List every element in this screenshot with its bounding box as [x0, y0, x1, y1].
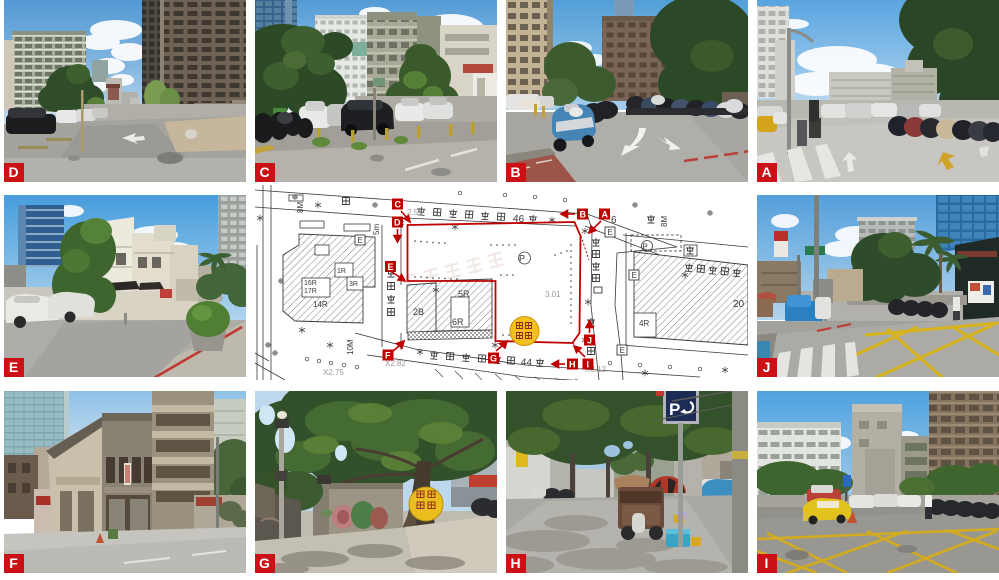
- svg-text:5R: 5R: [458, 289, 470, 299]
- svg-text:4R: 4R: [639, 319, 649, 328]
- svg-text:6: 6: [611, 215, 617, 226]
- svg-text:X2.75: X2.75: [323, 368, 344, 377]
- svg-text:F: F: [385, 351, 391, 361]
- svg-text:E: E: [631, 271, 636, 280]
- svg-text:G: G: [490, 354, 497, 364]
- svg-text:3R: 3R: [349, 281, 358, 288]
- svg-text:P: P: [642, 243, 647, 252]
- svg-text:C: C: [394, 200, 401, 210]
- svg-text:5m: 5m: [372, 224, 381, 235]
- svg-text:I: I: [586, 360, 589, 370]
- svg-text:8M: 8M: [660, 216, 669, 227]
- svg-text:16R: 16R: [304, 280, 317, 287]
- svg-text:J: J: [587, 336, 592, 346]
- svg-text:1R: 1R: [337, 268, 346, 275]
- svg-text:2B: 2B: [413, 307, 424, 317]
- svg-text:2.51: 2.51: [407, 208, 423, 217]
- svg-text:17R: 17R: [304, 288, 317, 295]
- svg-text:E: E: [387, 262, 393, 272]
- svg-text:H: H: [569, 360, 576, 370]
- svg-text:D: D: [394, 218, 401, 228]
- svg-text:3.01: 3.01: [545, 290, 561, 299]
- svg-text:20: 20: [733, 299, 745, 310]
- svg-text:E: E: [357, 236, 362, 245]
- svg-text:B: B: [579, 210, 586, 220]
- svg-text:E: E: [619, 346, 624, 355]
- svg-text:10M: 10M: [346, 339, 355, 355]
- svg-text:A: A: [601, 210, 608, 220]
- svg-text:6R: 6R: [452, 317, 464, 327]
- svg-text:P: P: [518, 254, 524, 264]
- svg-text:E: E: [607, 228, 612, 237]
- svg-text:8M: 8M: [296, 202, 305, 213]
- svg-text:44: 44: [520, 357, 532, 369]
- svg-text:14R: 14R: [313, 300, 328, 309]
